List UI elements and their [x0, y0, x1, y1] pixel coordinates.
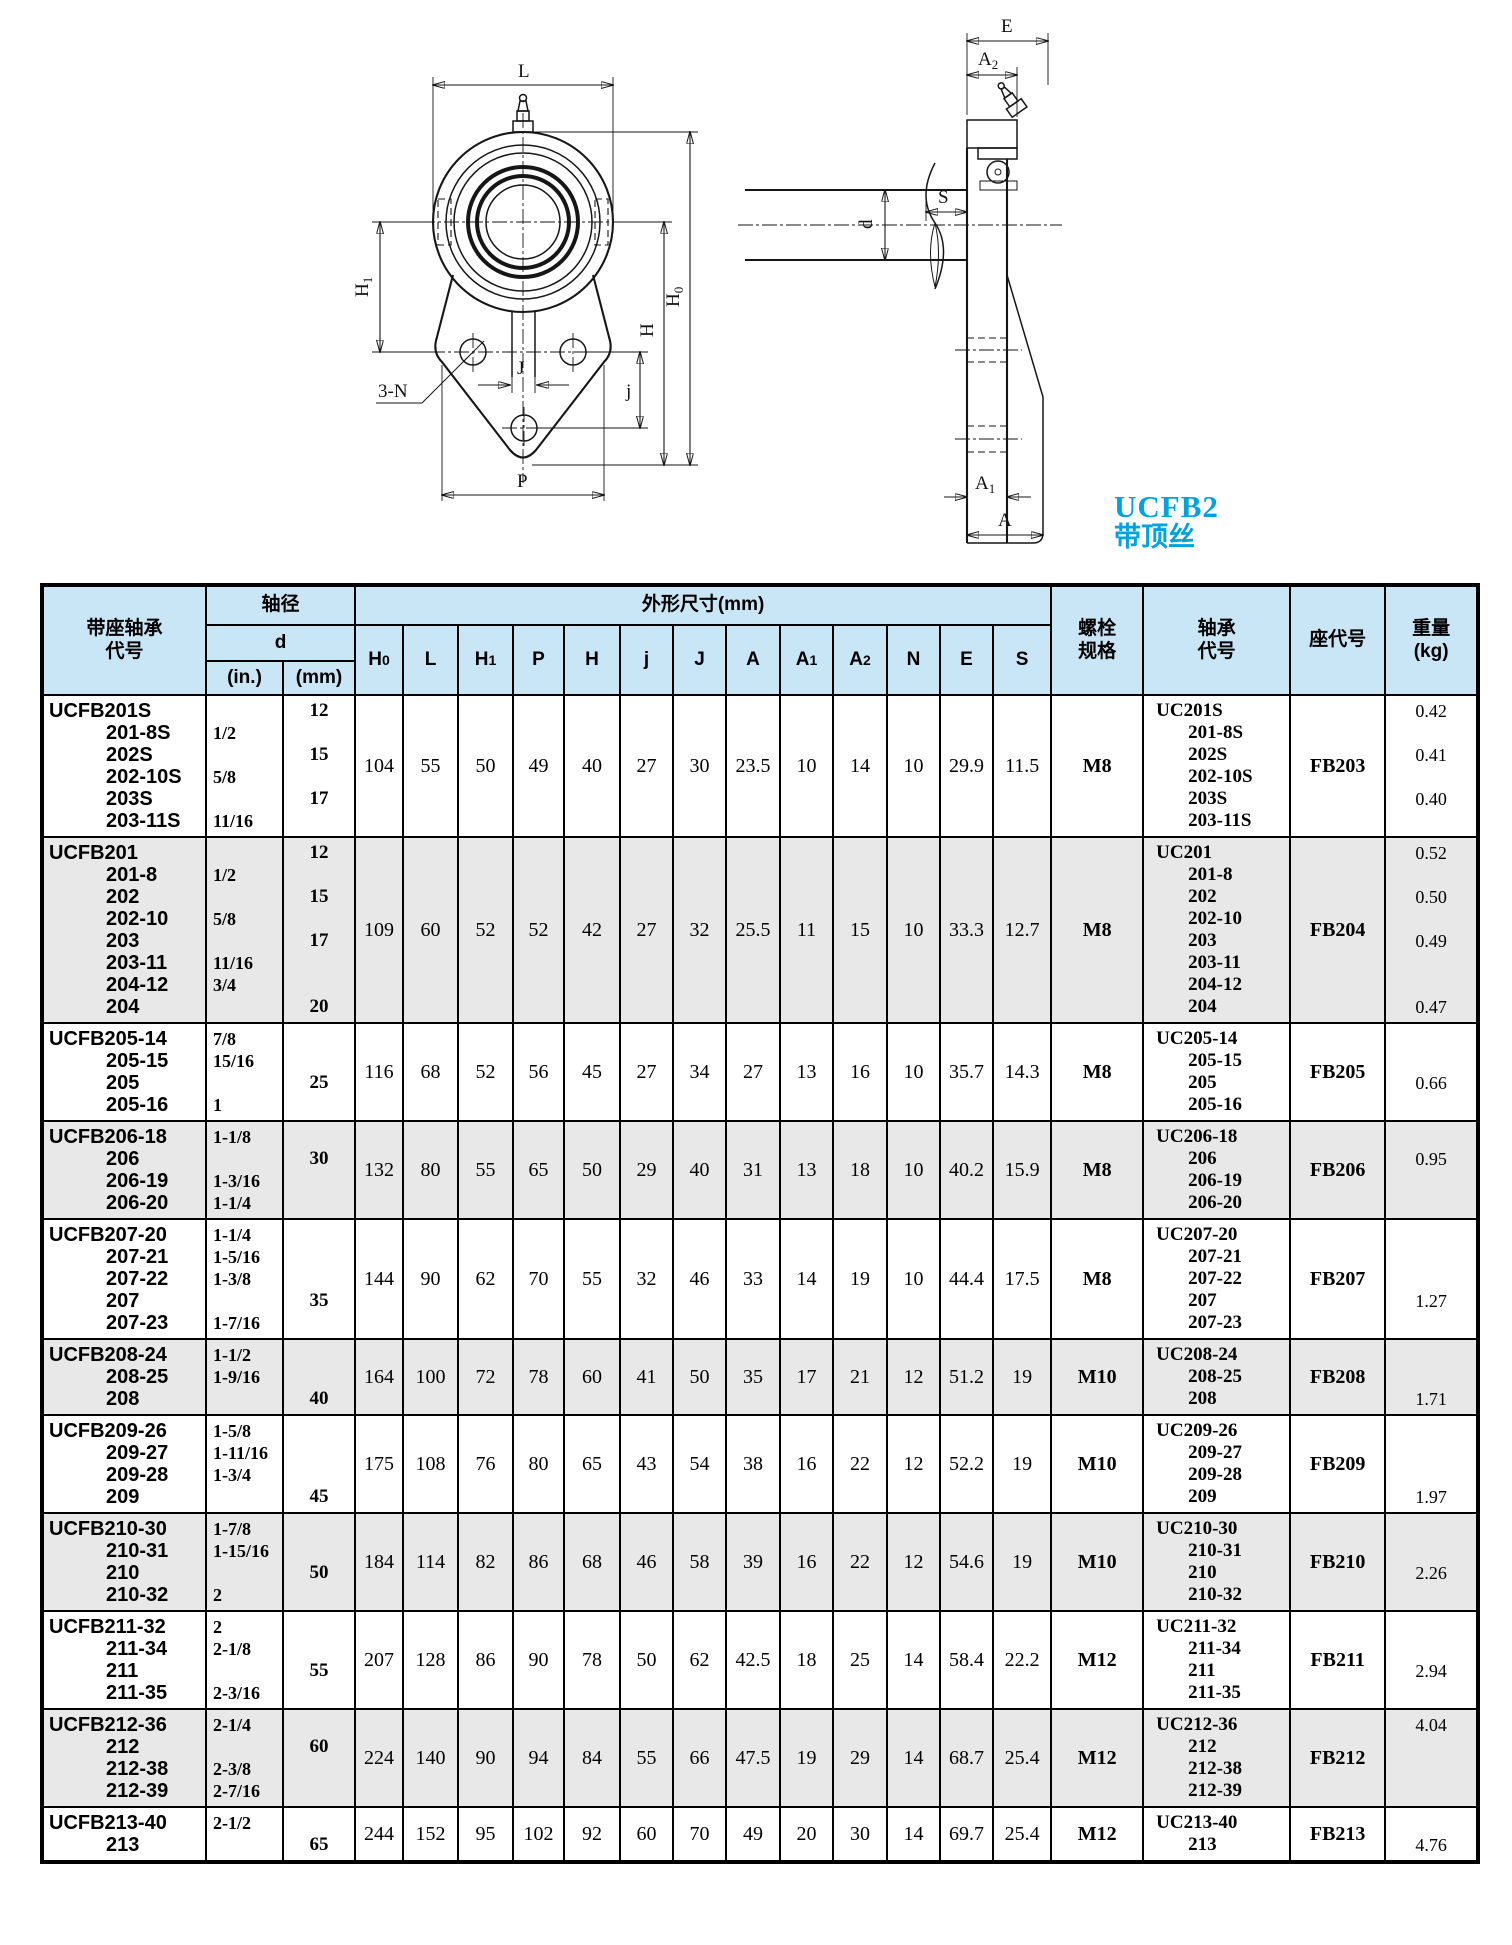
- shaft-dia-inch-cell: 1/2 5/8 11/163/4: [206, 837, 283, 1023]
- bearing-unit-code-cell: UCFB208-24208-25208: [42, 1339, 206, 1415]
- dim-A-cell: 25.5: [726, 837, 780, 1023]
- header-dim-A2: A2: [833, 625, 887, 695]
- cell-line: 210-31: [44, 1540, 205, 1562]
- cell-line: 1-7/8: [207, 1518, 282, 1540]
- dim-S-cell: 17.5: [993, 1219, 1051, 1339]
- weight-cell: 0.66: [1385, 1023, 1478, 1121]
- cell-line: 1-1/2: [207, 1344, 282, 1366]
- cell-line: 212-39: [44, 1780, 205, 1802]
- table-row: UCFB205-14205-15205205-167/815/16 1 25 1…: [42, 1023, 1478, 1121]
- cell-line: 213: [1144, 1834, 1289, 1856]
- dim-A2-cell: 15: [833, 837, 887, 1023]
- cell-line: [1386, 1638, 1476, 1660]
- bearing-code-cell: UC206-18206206-19206-20: [1143, 1121, 1290, 1219]
- dim-H-cell: 50: [564, 1121, 620, 1219]
- cell-line: 2-1/2: [207, 1812, 282, 1834]
- dim-j-cell: 43: [620, 1415, 673, 1513]
- cell-line: 205-16: [1144, 1094, 1289, 1116]
- dim-A-cell: 35: [726, 1339, 780, 1415]
- cell-line: 1/2: [207, 864, 282, 886]
- weight-cell: 4.76: [1385, 1807, 1478, 1862]
- cell-line: [207, 744, 282, 766]
- dim-A-cell: 39: [726, 1513, 780, 1611]
- cell-line: UC209-26: [1144, 1420, 1289, 1442]
- cell-line: [207, 788, 282, 810]
- shaft-dia-inch-cell: 1-1/8 1-3/161-1/4: [206, 1121, 283, 1219]
- dim-label-H1: H1: [352, 277, 375, 297]
- dim-label-E: E: [1001, 16, 1013, 37]
- cell-line: 1-1/8: [207, 1126, 282, 1148]
- cell-line: 3/4: [207, 974, 282, 996]
- dim-P-cell: 94: [513, 1709, 564, 1807]
- cell-line: 201-8: [1144, 864, 1289, 886]
- cell-line: 0.42: [1386, 700, 1476, 722]
- cell-line: 2-7/16: [207, 1780, 282, 1802]
- dim-j-cell: 46: [620, 1513, 673, 1611]
- table-row: UCFB206-18206206-19206-201-1/8 1-3/161-1…: [42, 1121, 1478, 1219]
- cell-line: [1386, 1094, 1476, 1116]
- shaft-dia-mm-cell: 65: [283, 1807, 355, 1862]
- cell-line: UC205-14: [1144, 1028, 1289, 1050]
- bearing-unit-code-cell: UCFB212-36212212-38212-39: [42, 1709, 206, 1807]
- dim-L-cell: 128: [403, 1611, 458, 1709]
- header-weight: 重量 (kg): [1385, 585, 1478, 695]
- dim-J-cell: 34: [673, 1023, 726, 1121]
- dim-A-cell: 49: [726, 1807, 780, 1862]
- dim-j-cell: 60: [620, 1807, 673, 1862]
- dim-label-L: L: [518, 61, 530, 82]
- cell-line: 210-32: [44, 1584, 205, 1606]
- cell-line: [284, 1420, 354, 1442]
- header-dim-E: E: [940, 625, 993, 695]
- cell-line: 206-19: [1144, 1170, 1289, 1192]
- cell-line: UC212-36: [1144, 1714, 1289, 1736]
- dim-J-cell: 66: [673, 1709, 726, 1807]
- cell-line: 207-21: [1144, 1246, 1289, 1268]
- cell-line: 212: [1144, 1736, 1289, 1758]
- cell-line: 203: [44, 930, 205, 952]
- bearing-unit-code-cell: UCFB206-18206206-19206-20: [42, 1121, 206, 1219]
- cell-line: 208: [44, 1388, 205, 1410]
- weight-cell: 1.71: [1385, 1339, 1478, 1415]
- cell-line: 211-35: [44, 1682, 205, 1704]
- dim-A-cell: 33: [726, 1219, 780, 1339]
- dim-P-cell: 65: [513, 1121, 564, 1219]
- cell-line: UCFB208-24: [44, 1344, 205, 1366]
- dim-label-A: A: [998, 510, 1012, 531]
- dim-A-cell: 23.5: [726, 695, 780, 837]
- cell-line: 1-5/16: [207, 1246, 282, 1268]
- housing-code-cell: FB204: [1290, 837, 1385, 1023]
- cell-line: 202S: [1144, 744, 1289, 766]
- cell-line: [284, 864, 354, 886]
- cell-line: 210: [44, 1562, 205, 1584]
- cell-line: 205: [44, 1072, 205, 1094]
- dim-H1-cell: 72: [458, 1339, 513, 1415]
- dim-L-cell: 140: [403, 1709, 458, 1807]
- cell-line: 1-3/16: [207, 1170, 282, 1192]
- cell-line: [1386, 1780, 1476, 1802]
- dim-label-A2: A2: [978, 49, 998, 72]
- table-row: UCFB211-32211-34211211-3522-1/8 2-3/16 5…: [42, 1611, 1478, 1709]
- dim-S-cell: 19: [993, 1513, 1051, 1611]
- cell-line: [284, 766, 354, 788]
- cell-line: UCFB207-20: [44, 1224, 205, 1246]
- dim-A2-cell: 22: [833, 1415, 887, 1513]
- cell-line: 1-5/8: [207, 1420, 282, 1442]
- dim-S-cell: 12.7: [993, 837, 1051, 1023]
- dim-H-cell: 40: [564, 695, 620, 837]
- cell-line: 207-23: [44, 1312, 205, 1334]
- cell-line: 212-38: [44, 1758, 205, 1780]
- dim-E-cell: 69.7: [940, 1807, 993, 1862]
- cell-line: [284, 1584, 354, 1606]
- cell-line: [284, 722, 354, 744]
- cell-line: 1: [207, 1094, 282, 1116]
- cell-line: 0.66: [1386, 1072, 1476, 1094]
- header-dim-J: J: [673, 625, 726, 695]
- bearing-code-cell: UC211-32211-34211211-35: [1143, 1611, 1290, 1709]
- cell-line: [1386, 1126, 1476, 1148]
- table-row: UCFB212-36212212-38212-392-1/4 2-3/82-7/…: [42, 1709, 1478, 1807]
- cell-line: 5/8: [207, 766, 282, 788]
- cell-line: UC208-24: [1144, 1344, 1289, 1366]
- dim-H1-cell: 52: [458, 837, 513, 1023]
- dim-A-cell: 31: [726, 1121, 780, 1219]
- cell-line: 1/2: [207, 722, 282, 744]
- cell-line: [284, 1714, 354, 1736]
- cell-line: 2-1/8: [207, 1638, 282, 1660]
- cell-line: 204: [44, 996, 205, 1018]
- series-code: UCFB2: [1114, 490, 1219, 523]
- cell-line: 205-15: [1144, 1050, 1289, 1072]
- dim-P-cell: 78: [513, 1339, 564, 1415]
- dim-A1-cell: 20: [780, 1807, 833, 1862]
- dim-H-cell: 45: [564, 1023, 620, 1121]
- cell-line: 30: [284, 1148, 354, 1170]
- cell-line: UCFB201S: [44, 700, 205, 722]
- dim-H0-cell: 116: [355, 1023, 403, 1121]
- bearing-unit-code-cell: UCFB210-30210-31210210-32: [42, 1513, 206, 1611]
- dim-E-cell: 33.3: [940, 837, 993, 1023]
- cell-line: 202-10: [1144, 908, 1289, 930]
- dim-S-cell: 25.4: [993, 1709, 1051, 1807]
- catalog-page: 3-N L H1 J j H H0 P: [0, 0, 1512, 1945]
- cell-line: [1386, 952, 1476, 974]
- bolt-spec-cell: M12: [1051, 1611, 1143, 1709]
- weight-cell: 1.27: [1385, 1219, 1478, 1339]
- bolt-spec-cell: M8: [1051, 1023, 1143, 1121]
- cell-line: 0.40: [1386, 788, 1476, 810]
- cell-line: 1.97: [1386, 1486, 1476, 1508]
- table-row: UCFB210-30210-31210210-321-7/81-15/16 2 …: [42, 1513, 1478, 1611]
- dim-P-cell: 86: [513, 1513, 564, 1611]
- cell-line: [1386, 1518, 1476, 1540]
- shaft-dia-inch-cell: 1-5/81-11/161-3/4: [206, 1415, 283, 1513]
- dim-H0-cell: 164: [355, 1339, 403, 1415]
- dim-H-cell: 78: [564, 1611, 620, 1709]
- cell-line: 203-11: [44, 952, 205, 974]
- header-bearing-unit-code: 带座轴承 代号: [42, 585, 206, 695]
- cell-line: 203S: [44, 788, 205, 810]
- dim-j-cell: 55: [620, 1709, 673, 1807]
- header-shaft-diameter: 轴径: [206, 585, 355, 625]
- bearing-unit-code-cell: UCFB213-40213: [42, 1807, 206, 1862]
- dim-H0-cell: 104: [355, 695, 403, 837]
- cell-line: 1-15/16: [207, 1540, 282, 1562]
- shaft-dia-mm-cell: 25: [283, 1023, 355, 1121]
- cell-line: [284, 1312, 354, 1334]
- cell-line: [1386, 722, 1476, 744]
- dim-H1-cell: 76: [458, 1415, 513, 1513]
- dim-S-cell: 14.3: [993, 1023, 1051, 1121]
- bearing-unit-code-cell: UCFB205-14205-15205205-16: [42, 1023, 206, 1121]
- dim-label-P: P: [517, 471, 528, 492]
- cell-line: [284, 1366, 354, 1388]
- cell-line: UCFB212-36: [44, 1714, 205, 1736]
- cell-line: 208-25: [1144, 1366, 1289, 1388]
- dim-j-cell: 29: [620, 1121, 673, 1219]
- weight-cell: 4.04: [1385, 1709, 1478, 1807]
- shaft-dia-mm-cell: 12 15 17: [283, 695, 355, 837]
- cell-line: 206-19: [44, 1170, 205, 1192]
- cell-line: 209: [1144, 1486, 1289, 1508]
- cell-line: [284, 1442, 354, 1464]
- shaft-dia-mm-cell: 40: [283, 1339, 355, 1415]
- cell-line: 2: [207, 1584, 282, 1606]
- shaft-dia-mm-cell: 45: [283, 1415, 355, 1513]
- dim-H0-cell: 224: [355, 1709, 403, 1807]
- housing-code-cell: FB212: [1290, 1709, 1385, 1807]
- cell-line: [284, 1050, 354, 1072]
- bearing-code-cell: UC213-40213: [1143, 1807, 1290, 1862]
- dim-H-cell: 60: [564, 1339, 620, 1415]
- dim-S-cell: 22.2: [993, 1611, 1051, 1709]
- cell-line: UCFB213-40: [44, 1812, 205, 1834]
- cell-line: [1386, 974, 1476, 996]
- housing-code-cell: FB205: [1290, 1023, 1385, 1121]
- bolt-spec-cell: M10: [1051, 1339, 1143, 1415]
- cell-line: 15: [284, 744, 354, 766]
- cell-line: [207, 1562, 282, 1584]
- table-row: UCFB201201-8202202-10203203-11204-12204 …: [42, 837, 1478, 1023]
- dim-E-cell: 51.2: [940, 1339, 993, 1415]
- header-dim-A: A: [726, 625, 780, 695]
- cell-line: UC211-32: [1144, 1616, 1289, 1638]
- dim-P-cell: 80: [513, 1415, 564, 1513]
- dim-A2-cell: 18: [833, 1121, 887, 1219]
- dim-H1-cell: 82: [458, 1513, 513, 1611]
- dim-J-cell: 54: [673, 1415, 726, 1513]
- dim-P-cell: 70: [513, 1219, 564, 1339]
- cell-line: 202: [44, 886, 205, 908]
- shaft-dia-inch-cell: 2-1/4 2-3/82-7/16: [206, 1709, 283, 1807]
- cell-line: 211-34: [1144, 1638, 1289, 1660]
- dim-H1-cell: 50: [458, 695, 513, 837]
- cell-line: [207, 1290, 282, 1312]
- dim-A1-cell: 10: [780, 695, 833, 837]
- dim-N-cell: 12: [887, 1415, 940, 1513]
- weight-cell: 2.26: [1385, 1513, 1478, 1611]
- cell-line: 206-20: [44, 1192, 205, 1214]
- cell-line: [284, 908, 354, 930]
- cell-line: [1386, 1268, 1476, 1290]
- dim-P-cell: 49: [513, 695, 564, 837]
- dim-label-H0: H0: [663, 287, 686, 307]
- cell-line: 0.95: [1386, 1148, 1476, 1170]
- dim-P-cell: 102: [513, 1807, 564, 1862]
- bearing-unit-code-cell: UCFB201201-8202202-10203203-11204-12204: [42, 837, 206, 1023]
- dim-L-cell: 55: [403, 695, 458, 837]
- header-bearing-code: 轴承 代号: [1143, 585, 1290, 695]
- cell-line: [1386, 1464, 1476, 1486]
- header-dim-P: P: [513, 625, 564, 695]
- dim-A1-cell: 14: [780, 1219, 833, 1339]
- dim-E-cell: 52.2: [940, 1415, 993, 1513]
- dim-A1-cell: 13: [780, 1023, 833, 1121]
- dim-S-cell: 15.9: [993, 1121, 1051, 1219]
- dim-j-cell: 50: [620, 1611, 673, 1709]
- cell-line: [1386, 1584, 1476, 1606]
- housing-code-cell: FB206: [1290, 1121, 1385, 1219]
- dim-N-cell: 14: [887, 1709, 940, 1807]
- dim-S-cell: 19: [993, 1415, 1051, 1513]
- cell-line: [284, 1224, 354, 1246]
- front-view-drawing: 3-N L H1 J j H H0 P: [350, 25, 710, 525]
- bolt-spec-cell: M10: [1051, 1415, 1143, 1513]
- cell-line: UCFB205-14: [44, 1028, 205, 1050]
- dim-A1-cell: 18: [780, 1611, 833, 1709]
- dim-j-cell: 32: [620, 1219, 673, 1339]
- cell-line: 207: [44, 1290, 205, 1312]
- shaft-dia-mm-cell: 12 15 17 20: [283, 837, 355, 1023]
- cell-line: 203-11S: [44, 810, 205, 832]
- dim-E-cell: 35.7: [940, 1023, 993, 1121]
- cell-line: 65: [284, 1834, 354, 1856]
- cell-line: 209-28: [1144, 1464, 1289, 1486]
- cell-line: [1386, 810, 1476, 832]
- header-dim-S: S: [993, 625, 1051, 695]
- bearing-code-cell: UC205-14205-15205205-16: [1143, 1023, 1290, 1121]
- cell-line: [1386, 1736, 1476, 1758]
- dim-j-cell: 27: [620, 1023, 673, 1121]
- side-view-drawing: d E A2 S A1: [730, 5, 1070, 560]
- cell-line: 202-10: [44, 908, 205, 930]
- cell-line: [1386, 1758, 1476, 1780]
- cell-line: 202-10S: [44, 766, 205, 788]
- header-d: d: [206, 625, 355, 661]
- dim-P-cell: 56: [513, 1023, 564, 1121]
- cell-line: [1386, 1812, 1476, 1834]
- dim-N-cell: 10: [887, 695, 940, 837]
- dim-label-d: d: [856, 219, 877, 229]
- table-row: UCFB209-26209-27209-282091-5/81-11/161-3…: [42, 1415, 1478, 1513]
- cell-line: [1386, 1224, 1476, 1246]
- shaft-dia-inch-cell: 7/815/16 1: [206, 1023, 283, 1121]
- dim-H1-cell: 90: [458, 1709, 513, 1807]
- cell-line: 1-9/16: [207, 1366, 282, 1388]
- header-dim-j: j: [620, 625, 673, 695]
- cell-line: 0.41: [1386, 744, 1476, 766]
- dim-E-cell: 44.4: [940, 1219, 993, 1339]
- cell-line: 201-8S: [1144, 722, 1289, 744]
- dim-A2-cell: 14: [833, 695, 887, 837]
- cell-line: 206-20: [1144, 1192, 1289, 1214]
- dim-A2-cell: 29: [833, 1709, 887, 1807]
- shaft-dia-mm-cell: 30: [283, 1121, 355, 1219]
- cell-line: 210-31: [1144, 1540, 1289, 1562]
- cell-line: 209: [44, 1486, 205, 1508]
- cell-line: [207, 930, 282, 952]
- dim-E-cell: 29.9: [940, 695, 993, 837]
- dim-A-cell: 47.5: [726, 1709, 780, 1807]
- header-d-inch: (in.): [206, 661, 283, 695]
- cell-line: UCFB209-26: [44, 1420, 205, 1442]
- dim-N-cell: 14: [887, 1611, 940, 1709]
- shaft-dia-inch-cell: 1-1/41-5/161-3/8 1-7/16: [206, 1219, 283, 1339]
- dim-H-cell: 84: [564, 1709, 620, 1807]
- cell-line: 205-16: [44, 1094, 205, 1116]
- dim-j-cell: 27: [620, 695, 673, 837]
- shaft-dia-inch-cell: 1-7/81-15/16 2: [206, 1513, 283, 1611]
- shaft-dia-mm-cell: 60: [283, 1709, 355, 1807]
- bearing-code-cell: UC201201-8202202-10203203-11204-12204: [1143, 837, 1290, 1023]
- dim-label-3N: 3-N: [378, 381, 408, 402]
- cell-line: UC210-30: [1144, 1518, 1289, 1540]
- cell-line: [284, 1616, 354, 1638]
- dim-S-cell: 19: [993, 1339, 1051, 1415]
- cell-line: 207-22: [44, 1268, 205, 1290]
- cell-line: 11/16: [207, 810, 282, 832]
- bearing-code-cell: UC208-24208-25208: [1143, 1339, 1290, 1415]
- dim-label-A1: A1: [975, 473, 995, 496]
- series-label: UCFB2 带顶丝: [1114, 490, 1219, 553]
- dim-L-cell: 60: [403, 837, 458, 1023]
- cell-line: [1386, 864, 1476, 886]
- dim-J-cell: 30: [673, 695, 726, 837]
- housing-code-cell: FB207: [1290, 1219, 1385, 1339]
- shaft-dia-mm-cell: 55: [283, 1611, 355, 1709]
- cell-line: 60: [284, 1736, 354, 1758]
- cell-line: [1386, 1170, 1476, 1192]
- cell-line: 211: [1144, 1660, 1289, 1682]
- dim-J-cell: 58: [673, 1513, 726, 1611]
- cell-line: [284, 810, 354, 832]
- weight-cell: 0.52 0.50 0.49 0.47: [1385, 837, 1478, 1023]
- dim-P-cell: 52: [513, 837, 564, 1023]
- dim-N-cell: 10: [887, 1023, 940, 1121]
- cell-line: 205-15: [44, 1050, 205, 1072]
- cell-line: 12: [284, 700, 354, 722]
- housing-code-cell: FB203: [1290, 695, 1385, 837]
- dim-H1-cell: 95: [458, 1807, 513, 1862]
- dim-E-cell: 40.2: [940, 1121, 993, 1219]
- cell-line: [207, 1736, 282, 1758]
- cell-line: [284, 1812, 354, 1834]
- cell-line: [207, 1486, 282, 1508]
- cell-line: 15: [284, 886, 354, 908]
- dim-L-cell: 68: [403, 1023, 458, 1121]
- dim-J-cell: 50: [673, 1339, 726, 1415]
- dim-J-cell: 70: [673, 1807, 726, 1862]
- cell-line: [284, 1192, 354, 1214]
- dim-L-cell: 152: [403, 1807, 458, 1862]
- cell-line: 0.49: [1386, 930, 1476, 952]
- table-row: UCFB207-20207-21207-22207207-231-1/41-5/…: [42, 1219, 1478, 1339]
- cell-line: 212-38: [1144, 1758, 1289, 1780]
- cell-line: [1386, 1050, 1476, 1072]
- cell-line: 17: [284, 930, 354, 952]
